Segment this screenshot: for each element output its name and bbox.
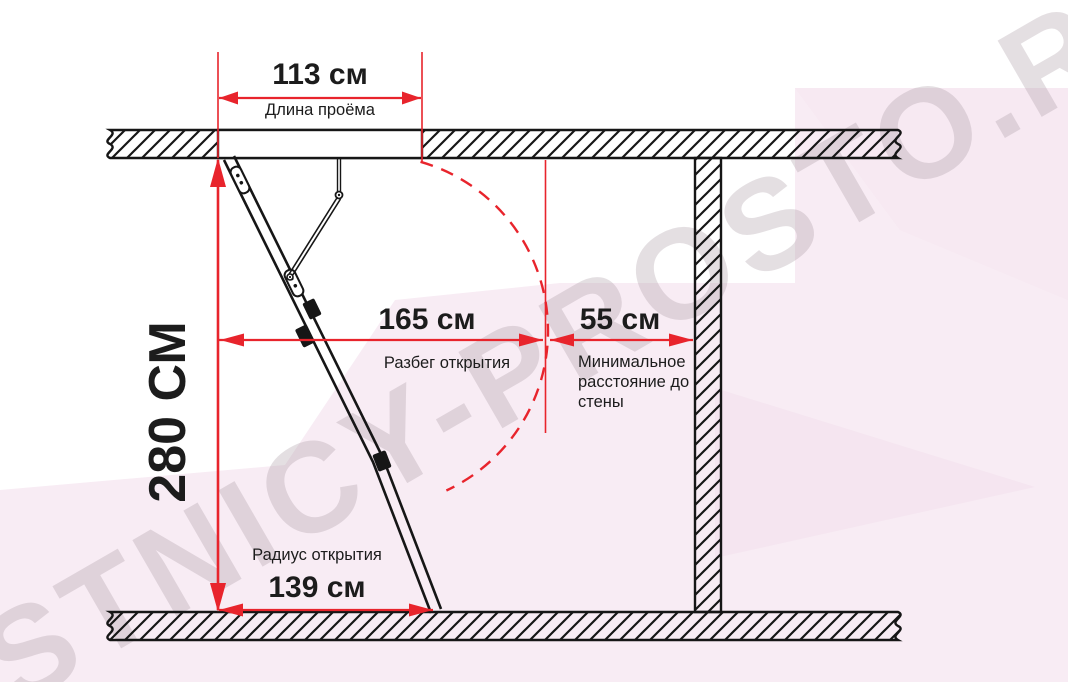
floor-structure bbox=[107, 612, 900, 640]
wall-clearance-caption: Минимальное расстояние до стены bbox=[578, 352, 714, 412]
folding-ladder bbox=[224, 156, 441, 613]
ladder-hinge-plate bbox=[229, 165, 251, 195]
ladder-strut bbox=[336, 159, 343, 199]
opening-run-caption: Разбег открытия bbox=[347, 354, 547, 373]
opening-radius-caption: Радиус открытия bbox=[217, 546, 417, 565]
ceiling-structure bbox=[107, 130, 900, 158]
ladder-joint-block bbox=[295, 324, 315, 348]
opening-run-value: 165 см bbox=[327, 303, 527, 337]
hatch-opening-box bbox=[218, 130, 422, 158]
opening-length-value: 113 см bbox=[220, 58, 420, 92]
dimension-280 bbox=[210, 158, 226, 612]
ladder-mechanism-arm bbox=[287, 197, 341, 280]
ladder-dimension-diagram: LESTNICY-PROSTO.RU bbox=[0, 0, 1068, 682]
ceiling-height-value: 280 СМ bbox=[138, 292, 198, 532]
wall-clearance-value: 55 см bbox=[520, 303, 720, 337]
opening-length-caption: Длина проёма bbox=[220, 101, 420, 120]
opening-radius-value: 139 см bbox=[217, 571, 417, 605]
